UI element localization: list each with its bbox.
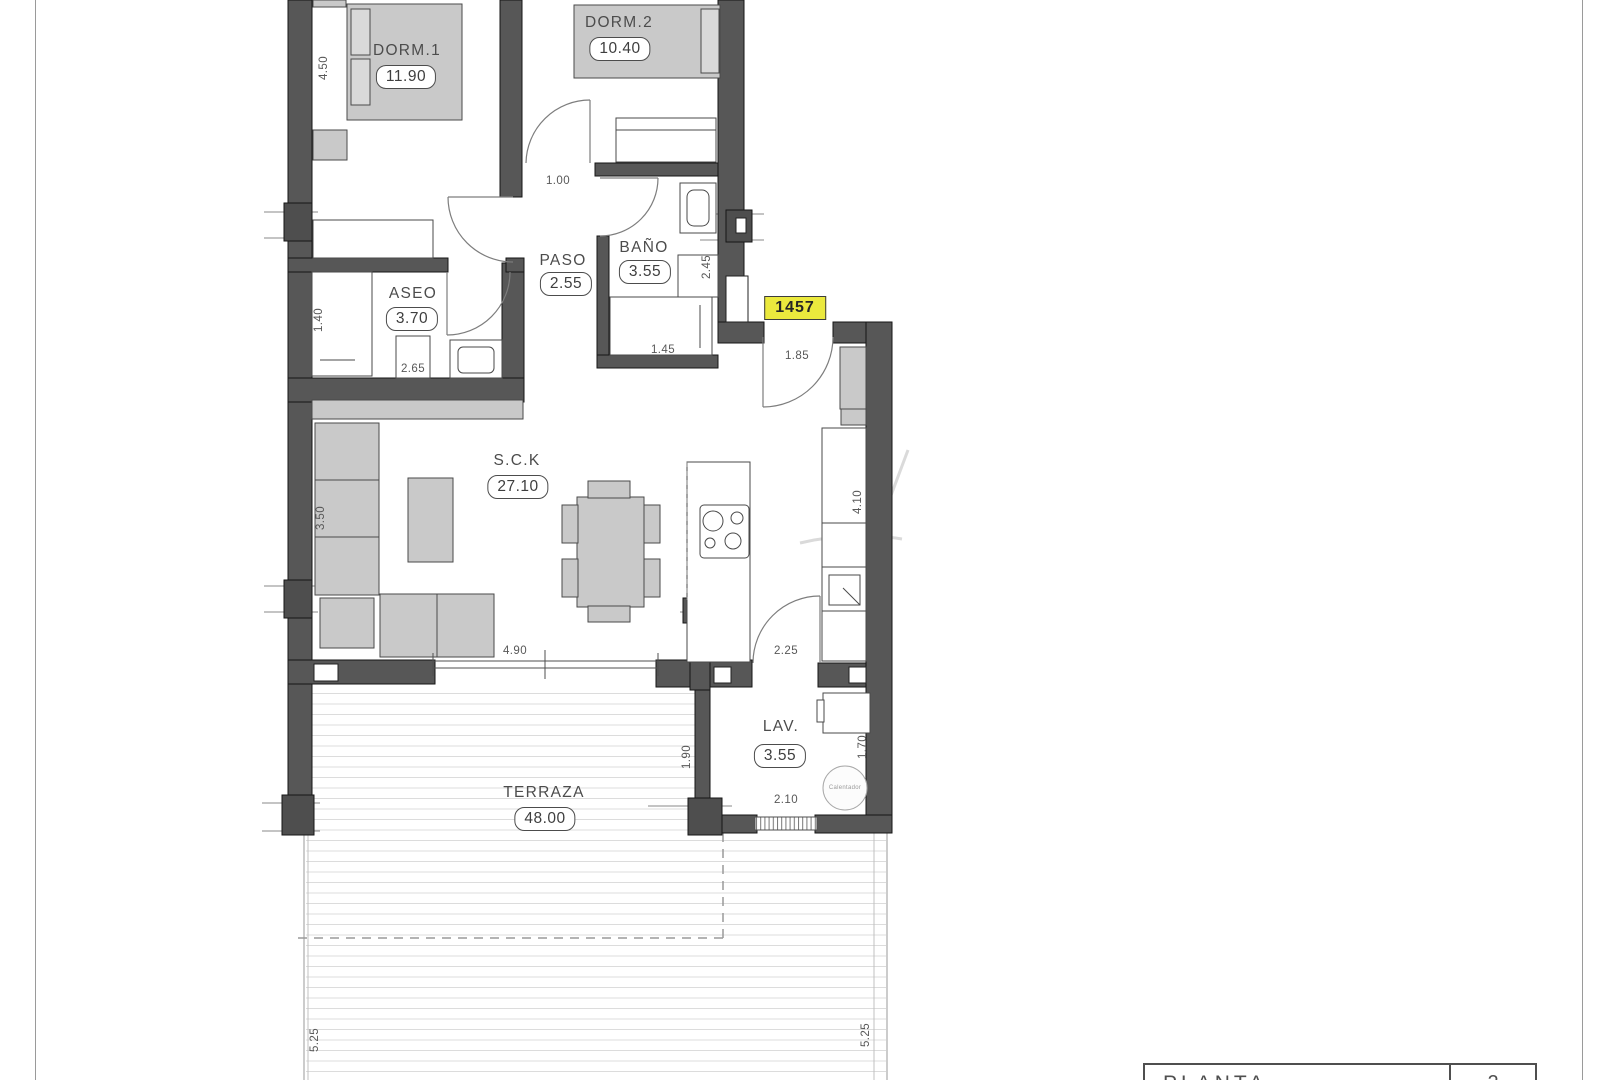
area-badge-sck: 27.10 — [487, 475, 548, 499]
dim-3-50: 3.50 — [315, 506, 327, 530]
area-badge-terraza: 48.00 — [514, 807, 575, 831]
room-label-sck: S.C.K — [494, 452, 541, 470]
calentador-label: Calentador — [829, 785, 861, 791]
room-label-aseo: ASEO — [389, 285, 437, 303]
floor-plan-drawing — [0, 0, 1620, 1080]
room-label-dorm1: DORM.1 — [373, 42, 441, 60]
sheet-number: 2 — [1451, 1072, 1535, 1080]
dim-4-10: 4.10 — [852, 490, 864, 514]
dim-2-10: 2.10 — [774, 794, 798, 806]
floor-plan-sheet: DORM.1 11.90 DORM.2 10.40 ASEO 3.70 PASO… — [0, 0, 1620, 1080]
area-badge-lav: 3.55 — [754, 744, 806, 768]
area-badge-dorm2: 10.40 — [589, 37, 650, 61]
dim-5-25-right: 5.25 — [860, 1023, 872, 1047]
unit-number-badge: 1457 — [764, 296, 826, 320]
sheet-border-right — [1582, 0, 1583, 1080]
dim-2-25: 2.25 — [774, 645, 798, 657]
sheet-border-left — [35, 0, 36, 1080]
dim-1-40: 1.40 — [313, 308, 325, 332]
area-badge-bano: 3.55 — [619, 260, 671, 284]
room-label-paso: PASO — [539, 252, 586, 270]
dim-1-00: 1.00 — [546, 175, 570, 187]
title-block: PLANTA 2 — [1143, 1063, 1537, 1080]
room-label-bano: BAÑO — [619, 239, 668, 257]
dim-4-50: 4.50 — [318, 56, 330, 80]
room-label-lav: LAV. — [763, 718, 799, 736]
title-block-name-cell: PLANTA — [1145, 1065, 1449, 1080]
dim-1-45: 1.45 — [651, 344, 675, 356]
dim-1-90: 1.90 — [681, 745, 693, 769]
dim-2-65: 2.65 — [401, 363, 425, 375]
area-badge-aseo: 3.70 — [386, 307, 438, 331]
area-badge-paso: 2.55 — [540, 272, 592, 296]
title-block-label: PLANTA — [1163, 1072, 1449, 1080]
dim-1-85: 1.85 — [785, 350, 809, 362]
title-block-number-cell: 2 — [1449, 1065, 1535, 1080]
dim-2-45: 2.45 — [701, 255, 713, 279]
dim-4-90: 4.90 — [503, 645, 527, 657]
dim-1-70: 1.70 — [857, 735, 869, 759]
room-label-dorm2: DORM.2 — [585, 14, 653, 32]
dim-5-25-left: 5.25 — [309, 1028, 321, 1052]
area-badge-dorm1: 11.90 — [376, 65, 436, 89]
room-label-terraza: TERRAZA — [503, 784, 584, 802]
